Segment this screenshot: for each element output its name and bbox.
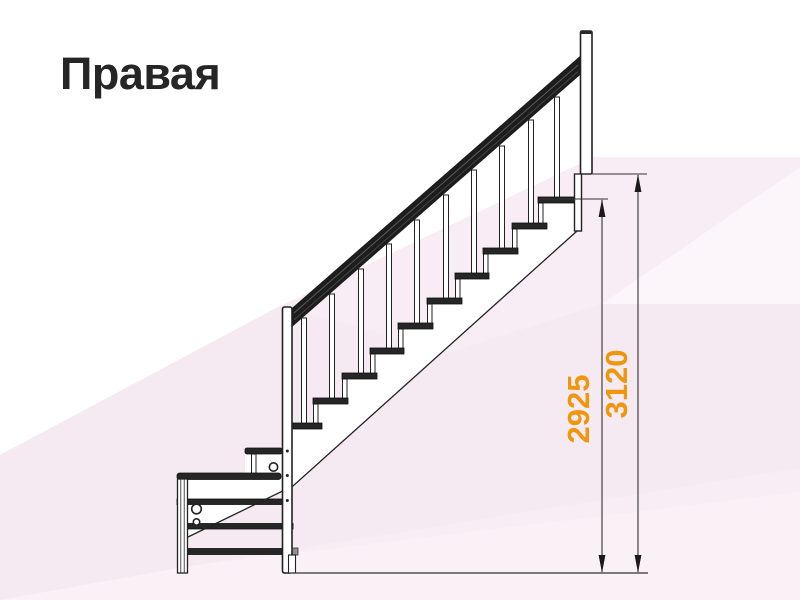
landing-tread	[177, 473, 281, 480]
page-title: Правая	[60, 48, 220, 100]
landing-fascia	[575, 174, 582, 231]
staircase-drawing-page: Правая	[0, 0, 800, 600]
screw-dot	[286, 450, 289, 453]
top-newel-post	[581, 31, 593, 174]
dimension-label-landing-height: 2925	[561, 375, 596, 444]
winder-tread	[245, 448, 282, 454]
screw-dot	[286, 474, 289, 477]
left-support-leg	[178, 479, 188, 573]
screw-dot	[286, 499, 289, 502]
dimension-label-total-height: 3120	[599, 350, 634, 419]
post-leg	[289, 555, 296, 573]
